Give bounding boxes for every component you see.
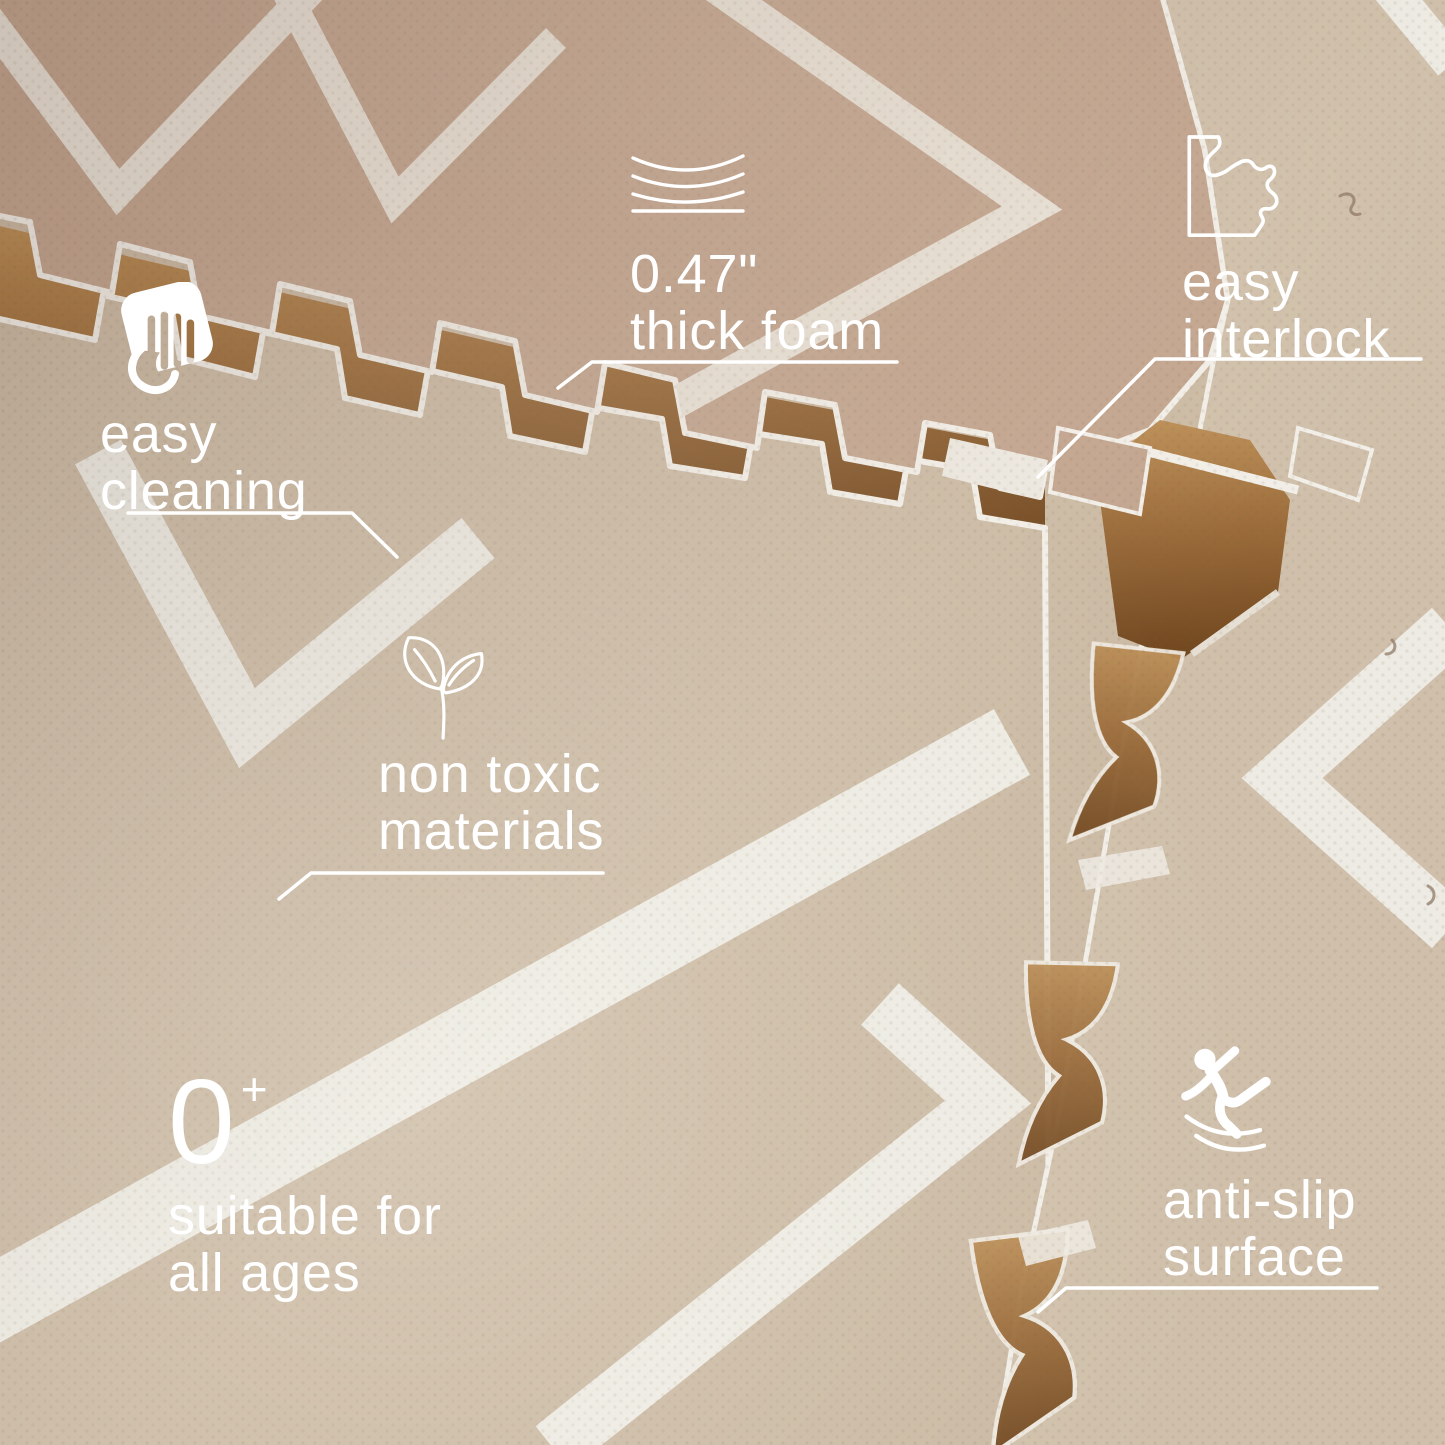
age-plus: + bbox=[241, 1063, 268, 1115]
feature-thick-foam: 0.47" thick foam bbox=[630, 150, 884, 360]
slipping-person-icon bbox=[1173, 1044, 1291, 1160]
feature-easy-interlock: easy interlock bbox=[1182, 128, 1390, 368]
feature-easy-cleaning: easy cleaning bbox=[100, 282, 308, 520]
feature-thick-foam-label: thick foam bbox=[630, 303, 884, 360]
foam-thickness-icon bbox=[630, 150, 746, 220]
feature-non-toxic-line1: non toxic bbox=[378, 746, 604, 803]
zero-plus-mark: 0+ bbox=[168, 1062, 442, 1182]
feature-non-toxic: non toxic materials bbox=[378, 628, 604, 860]
feature-all-ages: 0+ suitable for all ages bbox=[168, 1062, 442, 1302]
puzzle-interlock-icon bbox=[1182, 128, 1282, 246]
wiping-hand-icon bbox=[116, 282, 222, 400]
feature-easy-interlock-line1: easy bbox=[1182, 254, 1390, 311]
feature-non-toxic-line2: materials bbox=[378, 803, 604, 860]
feature-anti-slip: anti-slip surface bbox=[1163, 1044, 1356, 1286]
feature-easy-cleaning-line1: easy bbox=[100, 406, 308, 463]
feature-thick-foam-value: 0.47" bbox=[630, 246, 884, 303]
feature-easy-interlock-line2: interlock bbox=[1182, 311, 1390, 368]
callout-thick-foam-line bbox=[558, 362, 897, 388]
age-number: 0 bbox=[168, 1055, 235, 1189]
callout-easy-interlock-line bbox=[1038, 359, 1421, 477]
feature-easy-cleaning-line2: cleaning bbox=[100, 463, 308, 520]
sprout-leaves-icon bbox=[388, 628, 504, 744]
feature-all-ages-line1: suitable for bbox=[168, 1188, 442, 1245]
callout-non-toxic-line bbox=[279, 873, 603, 899]
product-feature-image: 0.47" thick foam easy interlock bbox=[0, 0, 1445, 1445]
feature-all-ages-line2: all ages bbox=[168, 1245, 442, 1302]
feature-anti-slip-line2: surface bbox=[1163, 1229, 1356, 1286]
callout-anti-slip-line bbox=[1038, 1288, 1377, 1312]
feature-anti-slip-line1: anti-slip bbox=[1163, 1172, 1356, 1229]
